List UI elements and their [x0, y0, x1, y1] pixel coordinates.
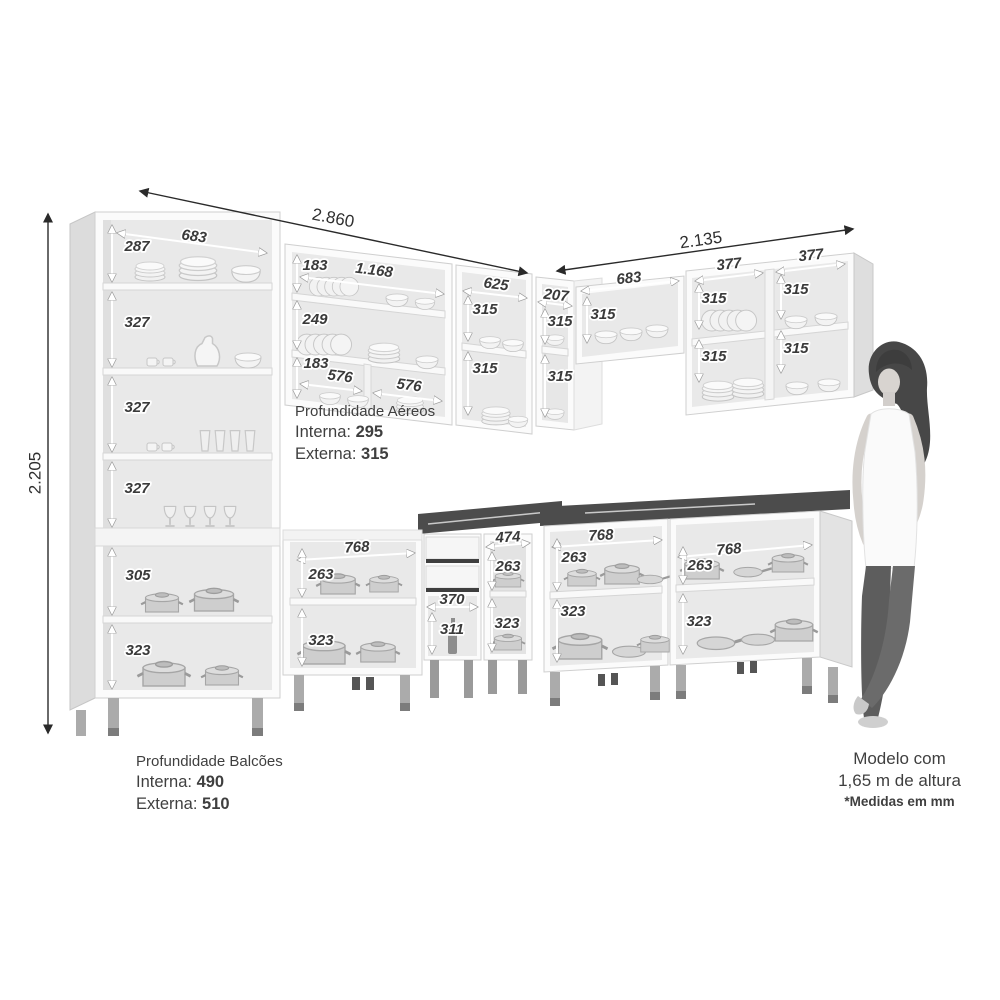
aereos-externa-value: 315 — [361, 445, 389, 463]
dim-label-r2: 249 — [301, 311, 328, 328]
dim-label-r2: 323 — [308, 632, 334, 649]
dim-label-r1: 315 — [472, 301, 498, 318]
dim-label-c5: 305 — [125, 567, 151, 584]
dim-label-r2: 323 — [686, 613, 712, 630]
model-figure — [854, 341, 931, 728]
modelo-line2: 1,65 m de altura — [812, 770, 987, 792]
dim-label-sub2: 576 — [396, 376, 424, 396]
dim-label-c4: 327 — [124, 480, 150, 497]
balcoes-interna-label: Interna: — [136, 773, 192, 791]
dim-label-r1: 263 — [686, 557, 713, 574]
dim-label-width: 207 — [542, 286, 570, 306]
tall-cabinet-legs — [76, 698, 263, 736]
dim-label-width_left_mm: 2.860 — [310, 205, 355, 232]
dim-label-c3: 327 — [124, 399, 150, 416]
dim-label-r2: 315 — [547, 368, 573, 385]
model-face — [878, 369, 900, 396]
dim-label-width: 474 — [494, 528, 522, 546]
dim-label-w2: 377 — [798, 246, 825, 266]
dim-label-c2r1: 315 — [783, 281, 809, 298]
aereos-externa-label: Externa: — [295, 445, 356, 463]
kitchen-diagram: 2.8602.1352.2056832873273273273053231.16… — [0, 0, 1000, 1000]
modelo-line3: *Medidas em mm — [812, 793, 987, 811]
dim-label-r1: 315 — [547, 313, 573, 330]
balcoes-interna-value: 490 — [197, 773, 225, 791]
dim-label-c1r1: 315 — [701, 290, 727, 307]
dim-label-r1: 263 — [307, 566, 334, 583]
dim-label-r2: 323 — [560, 603, 586, 620]
balcoes-title: Profundidade Balcões — [136, 752, 283, 772]
dim-label-h: 315 — [590, 306, 616, 323]
base-mid-legs — [294, 675, 410, 711]
aereos-interna-value: 295 — [356, 423, 384, 441]
dim-label-r3: 183 — [303, 355, 329, 372]
balcoes-externa-label: Externa: — [136, 795, 197, 813]
drawer-handle — [426, 559, 479, 563]
dim-label-sub1: 576 — [327, 367, 355, 387]
dim-label-height_mm: 2.205 — [25, 452, 44, 495]
base-cabinet-right2 — [670, 511, 852, 703]
corner-dishes — [546, 335, 564, 346]
tall-cabinet — [70, 212, 280, 736]
wall-cabinet-right — [686, 253, 873, 415]
note-modelo: Modelo com 1,65 m de altura *Medidas em … — [812, 748, 987, 811]
dim-label-r1: 263 — [494, 558, 521, 575]
model-shoe — [858, 716, 888, 728]
dim-label-width: 625 — [483, 275, 511, 295]
dim-label-r2: 323 — [494, 615, 520, 632]
dim-label-c1: 287 — [123, 238, 150, 255]
base-right1-legs — [550, 666, 660, 706]
dim-label-c2r2: 315 — [783, 340, 809, 357]
dim-label-width: 683 — [616, 269, 643, 289]
dim-label-r1: 183 — [302, 257, 328, 274]
dim-label-width: 768 — [716, 540, 743, 559]
dim-label-width: 768 — [588, 526, 615, 544]
dim-label-r2: 315 — [472, 360, 498, 377]
base-right2-legs — [676, 658, 838, 703]
balcoes-externa-value: 510 — [202, 795, 230, 813]
dim-label-c6: 323 — [125, 642, 151, 659]
dim-label-width: 370 — [439, 591, 465, 608]
dim-label-r1: 263 — [560, 549, 587, 566]
aereos-interna-label: Interna: — [295, 423, 351, 441]
dim-label-width: 683 — [180, 226, 208, 246]
note-profundidade-balcoes: Profundidade Balcões Interna: 490 Extern… — [136, 752, 283, 815]
dim-label-w1: 377 — [716, 255, 743, 275]
product-diagram: 2.8602.1352.2056832873273273273053231.16… — [0, 0, 1000, 1000]
model-top — [863, 409, 917, 568]
dim-label-width: 768 — [344, 538, 371, 556]
dim-label-h: 311 — [440, 621, 464, 638]
dim-label-c1r2: 315 — [701, 348, 727, 365]
dim-label-c2: 327 — [124, 314, 150, 331]
aereos-title: Profundidade Aéreos — [295, 402, 435, 422]
note-profundidade-aereos: Profundidade Aéreos Interna: 295 Externa… — [295, 402, 435, 465]
modelo-line1: Modelo com — [812, 748, 987, 770]
